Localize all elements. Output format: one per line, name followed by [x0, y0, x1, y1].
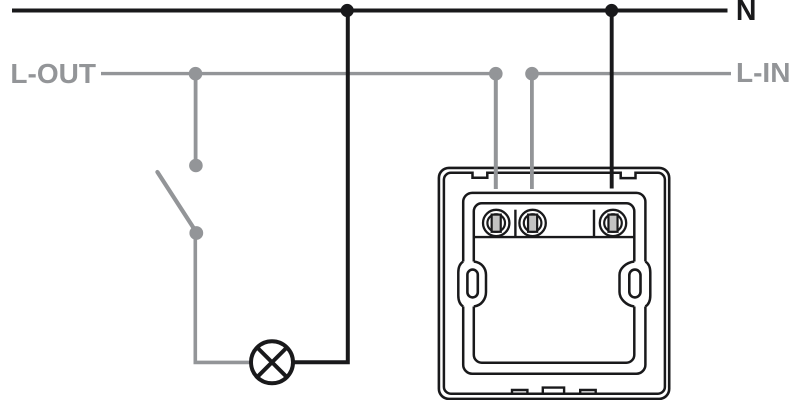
svg-text:N: N	[736, 0, 757, 27]
svg-text:L-IN: L-IN	[736, 57, 790, 88]
svg-text:L-OUT: L-OUT	[10, 58, 96, 89]
